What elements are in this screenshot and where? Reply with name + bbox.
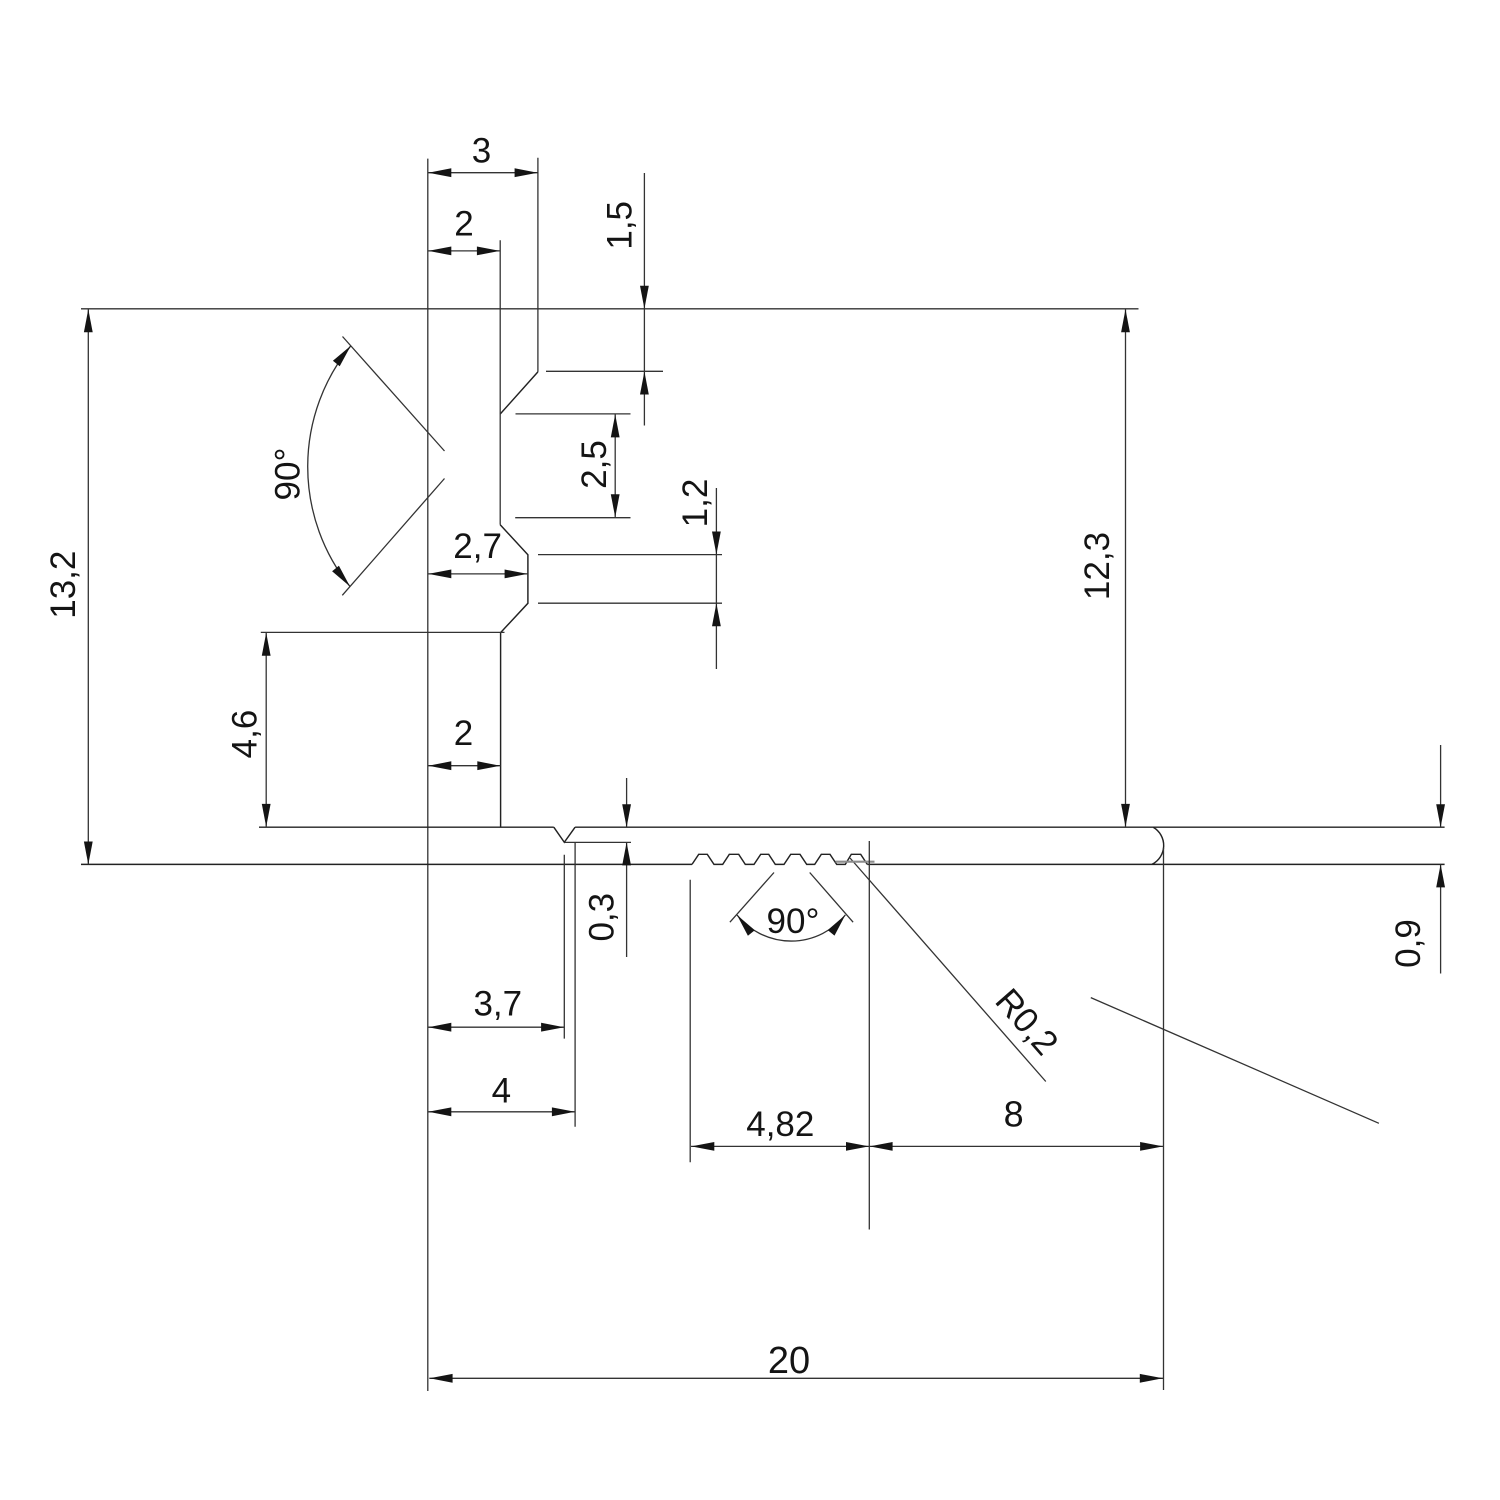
svg-text:2: 2 [454,714,473,753]
svg-text:0,3: 0,3 [583,893,622,942]
svg-text:2,5: 2,5 [575,440,614,489]
svg-text:90°: 90° [767,902,820,941]
svg-text:90°: 90° [268,448,307,501]
svg-text:8: 8 [1004,1094,1024,1135]
svg-text:2: 2 [454,205,473,244]
svg-text:12,3: 12,3 [1078,532,1117,600]
svg-text:1,2: 1,2 [676,479,715,528]
svg-text:0,9: 0,9 [1389,919,1428,968]
svg-text:4: 4 [492,1071,511,1110]
svg-text:1,5: 1,5 [601,201,640,250]
svg-text:3: 3 [472,132,491,171]
svg-text:4,6: 4,6 [226,710,265,759]
svg-text:4,82: 4,82 [746,1105,814,1144]
svg-text:20: 20 [768,1340,810,1382]
svg-text:3,7: 3,7 [473,985,522,1024]
svg-text:2,7: 2,7 [453,527,502,566]
svg-text:13,2: 13,2 [44,551,83,619]
